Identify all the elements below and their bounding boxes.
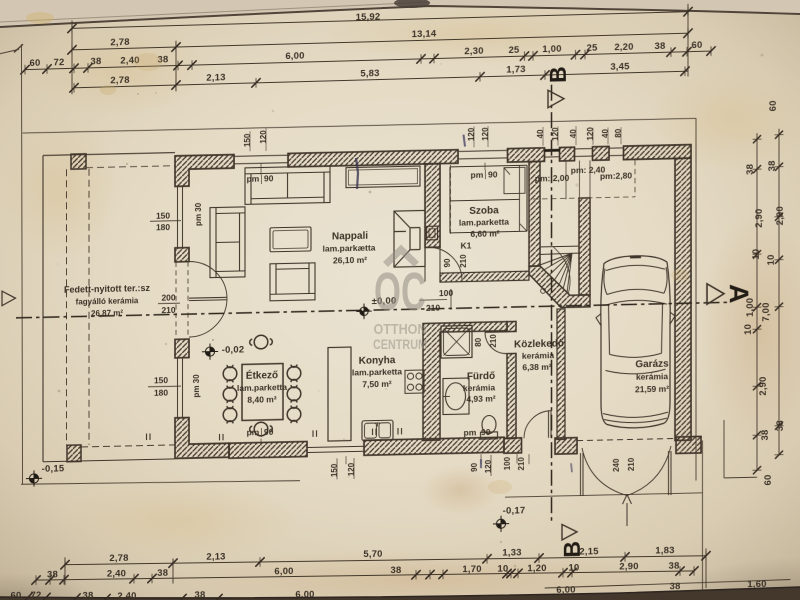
svg-text:7,50 m²: 7,50 m²: [362, 379, 391, 390]
svg-text:2,90: 2,90: [775, 206, 786, 226]
svg-text:kerámia: kerámia: [463, 382, 495, 393]
svg-text:6,00: 6,00: [556, 585, 575, 596]
svg-text:90: 90: [470, 462, 479, 472]
svg-text:100: 100: [503, 456, 512, 470]
svg-text:kerámia: kerámia: [522, 350, 554, 361]
svg-text:pm:2,80: pm:2,80: [600, 170, 632, 181]
svg-text:120: 120: [551, 127, 560, 141]
svg-text:3,45: 3,45: [610, 61, 630, 73]
svg-text:1,00: 1,00: [542, 44, 561, 56]
svg-text:1,60: 1,60: [747, 579, 766, 590]
svg-text:60: 60: [768, 100, 779, 111]
svg-text:240: 240: [612, 458, 621, 472]
svg-text:10: 10: [751, 249, 762, 260]
svg-text:210: 210: [489, 334, 498, 348]
svg-text:25: 25: [587, 43, 598, 54]
svg-text:K1: K1: [461, 240, 472, 250]
svg-text:Szoba: Szoba: [469, 205, 499, 217]
svg-text:38: 38: [760, 429, 771, 440]
svg-text:38: 38: [391, 565, 402, 576]
svg-text:2,15: 2,15: [579, 546, 599, 557]
svg-text:6,00: 6,00: [274, 566, 293, 577]
svg-text:38: 38: [47, 569, 58, 580]
svg-text:120: 120: [467, 127, 476, 141]
svg-text:lam.parketta: lam.parketta: [237, 382, 287, 393]
svg-text:1,73: 1,73: [506, 64, 525, 76]
svg-text:10: 10: [743, 324, 754, 335]
svg-text:Konyha: Konyha: [359, 355, 396, 367]
svg-text:38: 38: [670, 581, 681, 592]
svg-text:CENTRUM: CENTRUM: [373, 336, 427, 352]
svg-text:1,20: 1,20: [527, 563, 546, 574]
svg-text:pm 90: pm 90: [247, 173, 274, 184]
svg-text:150: 150: [154, 375, 168, 385]
svg-text:Garázs: Garázs: [635, 359, 669, 371]
svg-text:38: 38: [775, 420, 786, 431]
svg-text:lam.parkætta: lam.parkætta: [323, 243, 376, 254]
svg-text:80: 80: [614, 128, 623, 138]
svg-text:lam.parketta: lam.parketta: [352, 366, 402, 377]
svg-text:120: 120: [347, 462, 356, 476]
svg-text:2,90: 2,90: [619, 561, 638, 572]
svg-text:26,87 m²: 26,87 m²: [91, 309, 123, 319]
svg-text:180: 180: [154, 388, 168, 398]
svg-text:OC: OC: [374, 262, 426, 322]
svg-text:-0,02: -0,02: [222, 344, 245, 355]
svg-text:210: 210: [459, 254, 468, 268]
svg-text:5,70: 5,70: [363, 549, 382, 560]
svg-text:6,00: 6,00: [285, 51, 304, 63]
svg-text:1,70: 1,70: [462, 564, 481, 575]
svg-text:21,59 m²: 21,59 m²: [635, 384, 669, 395]
svg-text:lam.parketta: lam.parketta: [459, 217, 509, 228]
svg-text:Nappali: Nappali: [332, 231, 368, 243]
svg-text:1,00: 1,00: [745, 298, 756, 318]
svg-text:180: 180: [156, 222, 170, 232]
svg-text:1,33: 1,33: [502, 548, 521, 559]
svg-text:Fedett-nyitott ter.:sz: Fedett-nyitott ter.:sz: [64, 283, 150, 295]
svg-text:60: 60: [763, 474, 774, 485]
svg-text:8,40 m²: 8,40 m²: [247, 394, 276, 405]
svg-text:2,78: 2,78: [110, 75, 129, 87]
svg-text:40: 40: [569, 129, 578, 139]
svg-text:6,00: 6,00: [295, 589, 314, 600]
svg-text:6,38 m²: 6,38 m²: [522, 362, 551, 373]
svg-text:40: 40: [536, 129, 545, 139]
svg-text:38: 38: [91, 56, 102, 67]
svg-text:38: 38: [669, 561, 680, 572]
svg-text:38: 38: [655, 41, 666, 52]
svg-text:210: 210: [517, 457, 526, 471]
svg-text:pm 30: pm 30: [194, 202, 203, 226]
svg-text:2,78: 2,78: [109, 553, 128, 564]
svg-text:pm 90: pm 90: [471, 169, 498, 180]
svg-text:7,00: 7,00: [761, 302, 772, 322]
svg-text:10: 10: [569, 563, 580, 574]
svg-text:120: 120: [259, 130, 268, 144]
svg-text:2,90: 2,90: [754, 208, 765, 228]
svg-text:2,13: 2,13: [206, 552, 225, 563]
svg-text:2,40: 2,40: [117, 591, 136, 600]
svg-text:10: 10: [498, 564, 509, 575]
svg-text:1,83: 1,83: [655, 545, 674, 556]
svg-text:25: 25: [509, 45, 520, 56]
svg-text:pm 90: pm 90: [247, 427, 274, 438]
svg-text:26,10 m²: 26,10 m²: [333, 255, 367, 266]
svg-text:2,20: 2,20: [614, 42, 633, 54]
svg-text:Fürdő: Fürdő: [467, 371, 495, 383]
svg-text:fagyálló kerámia: fagyálló kerámia: [76, 296, 139, 306]
svg-text:150: 150: [156, 211, 170, 221]
svg-text:210: 210: [426, 303, 440, 313]
svg-text:72: 72: [54, 57, 65, 68]
svg-text:60: 60: [692, 40, 703, 51]
svg-text:38: 38: [745, 164, 756, 175]
svg-text:72: 72: [31, 590, 42, 600]
svg-text:120: 120: [481, 127, 490, 141]
svg-text:60: 60: [30, 58, 41, 69]
svg-text:200: 200: [161, 292, 175, 302]
svg-text:120: 120: [586, 127, 595, 141]
svg-text:40: 40: [601, 128, 610, 138]
svg-text:-0,17: -0,17: [503, 505, 526, 516]
svg-text:90: 90: [443, 258, 452, 268]
svg-text:38: 38: [767, 160, 778, 171]
svg-text:2,78: 2,78: [110, 37, 129, 49]
svg-text:Étkező: Étkező: [246, 368, 278, 382]
svg-text:210: 210: [627, 457, 636, 471]
svg-text:13,14: 13,14: [412, 29, 437, 41]
svg-text:150: 150: [243, 133, 252, 147]
svg-text:6,60 m²: 6,60 m²: [470, 228, 499, 239]
svg-text:60: 60: [11, 590, 22, 600]
svg-text:120: 120: [484, 459, 493, 473]
svg-text:5,83: 5,83: [360, 68, 379, 80]
svg-text:210: 210: [161, 305, 175, 315]
svg-text:B: B: [545, 66, 571, 83]
svg-text:150: 150: [330, 463, 339, 477]
svg-text:38: 38: [157, 568, 168, 579]
svg-text:2,40: 2,40: [107, 569, 126, 580]
svg-text:2,13: 2,13: [206, 72, 225, 84]
svg-text:80: 80: [474, 337, 483, 347]
svg-text:-0,15: -0,15: [42, 463, 65, 475]
svg-text:4,93 m²: 4,93 m²: [466, 393, 495, 404]
svg-text:pm 30: pm 30: [192, 374, 201, 398]
svg-text:10: 10: [766, 254, 777, 265]
svg-text:38: 38: [195, 590, 206, 600]
svg-text:2,90: 2,90: [758, 376, 769, 396]
svg-text:15,92: 15,92: [356, 12, 381, 24]
svg-text:38: 38: [83, 590, 94, 600]
svg-text:2,30: 2,30: [464, 46, 483, 58]
svg-text:pm 90: pm 90: [464, 427, 491, 438]
